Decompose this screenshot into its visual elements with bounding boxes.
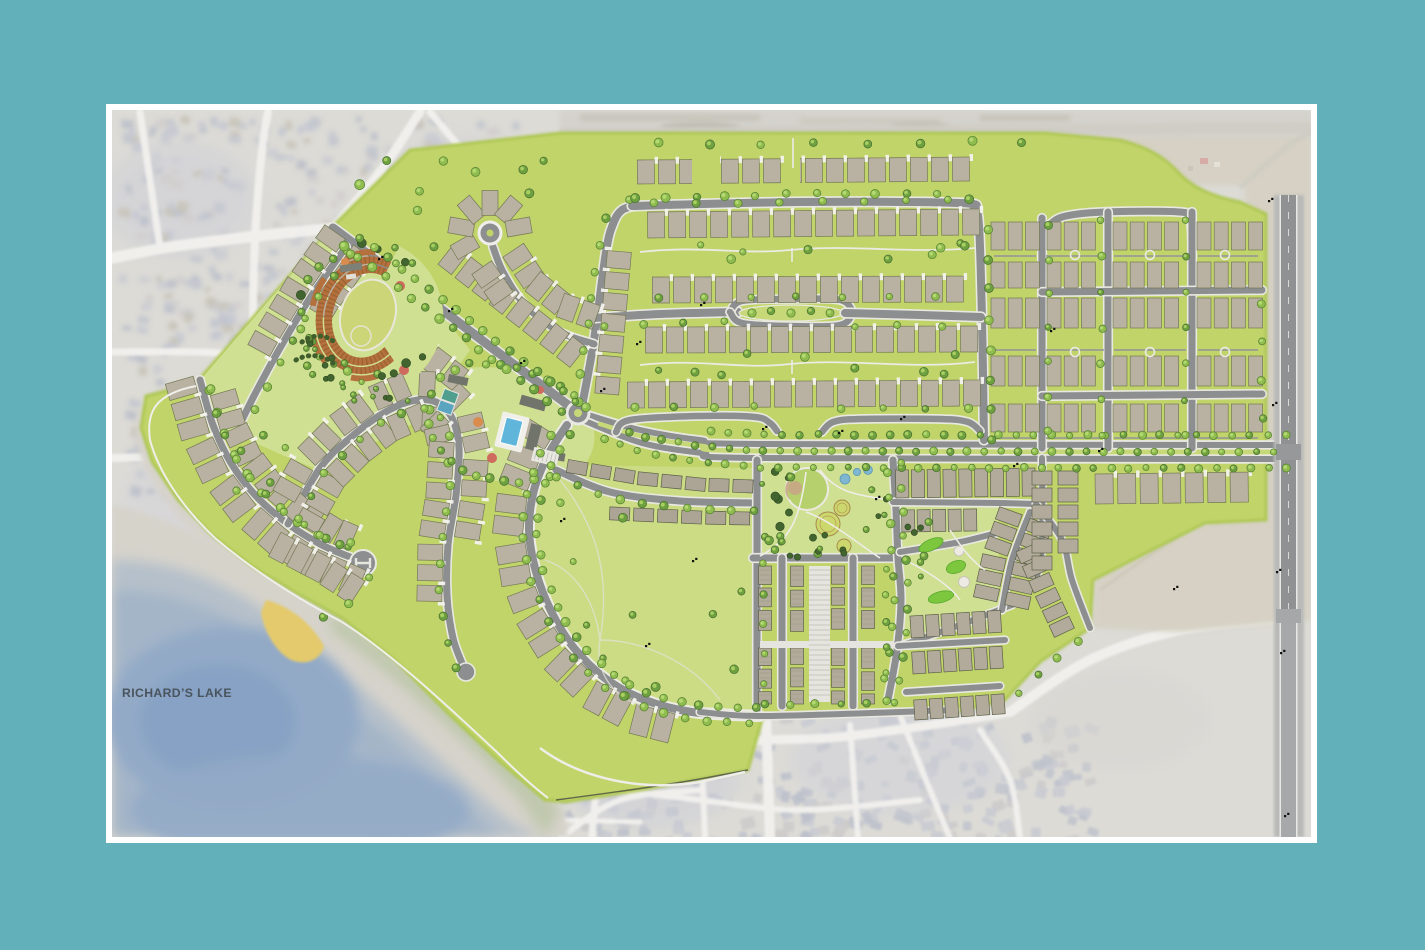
svg-text:RICHARD’S LAKE: RICHARD’S LAKE: [122, 686, 232, 700]
